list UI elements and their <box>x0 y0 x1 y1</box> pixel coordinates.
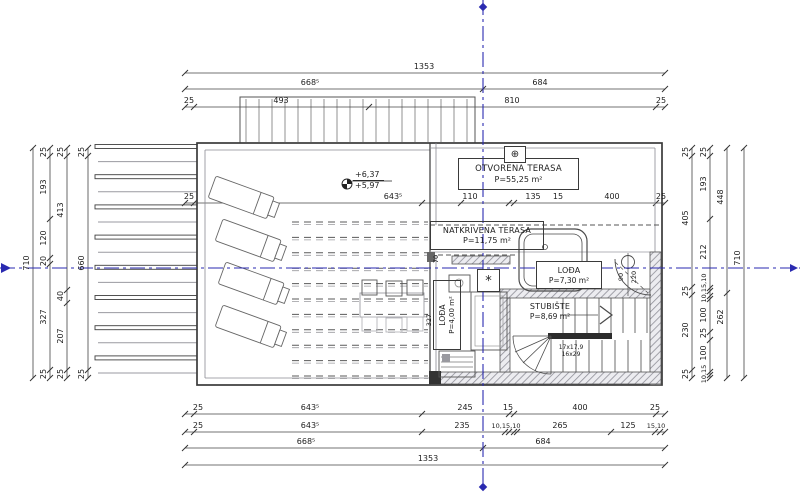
room-label-lodja-left: LOĐA P=4,00 m² <box>433 280 461 350</box>
room-name: NATKRIVENA TERASA <box>431 226 543 235</box>
dimension-label: 125 <box>620 422 635 430</box>
dimension-label: 660 <box>78 255 86 270</box>
dimension-label: 327 <box>426 314 433 326</box>
dimension-label: 20 <box>40 256 48 266</box>
dimension-label: 25 <box>700 147 708 157</box>
dimension-label: 10,15,10 <box>492 423 521 430</box>
room-label-lodja-right: LOĐA P=7,30 m² <box>536 261 602 289</box>
plan-linework <box>0 0 800 494</box>
dimension-label: 25 <box>78 369 86 379</box>
dimension-label: 207 <box>57 328 65 343</box>
dimension-label: 265 <box>552 422 567 430</box>
dimension-label: 15,10 <box>647 423 666 430</box>
asterisk-icon: * <box>485 274 492 289</box>
room-name: STUBIŠTE <box>512 302 588 311</box>
dimension-label: 25 <box>57 147 65 157</box>
room-area: P=7,30 m² <box>537 276 601 285</box>
stair-step-note: 17x17,9 16x29 <box>548 344 594 358</box>
dimension-label: 25 <box>193 404 203 412</box>
dimension-label: 643⁵ <box>301 422 319 430</box>
dimension-label: 135 <box>525 193 540 201</box>
dimension-label: 193 <box>700 176 708 191</box>
dimension-label: 25 <box>682 369 690 379</box>
room-label-natkrivena-terasa: NATKRIVENA TERASA P=11,75 m² <box>430 221 544 250</box>
dimension-label: 25 <box>656 193 666 201</box>
dimension-label: 10,15,10 <box>701 274 708 303</box>
roof-drain-symbol: ⊕ <box>504 146 526 163</box>
dimension-label: 220 <box>631 271 638 283</box>
dimension-label: 212 <box>700 244 708 259</box>
axis-lines <box>0 0 800 494</box>
dimension-label: 193 <box>40 179 48 194</box>
dimension-label: 810 <box>504 97 519 105</box>
dimension-label: 684 <box>532 79 547 87</box>
dimension-label: 710 <box>734 250 742 265</box>
level-upper: +6,37 <box>353 170 384 181</box>
room-area: P=8,69 m² <box>512 312 588 321</box>
dimension-label: 684 <box>535 438 550 446</box>
dimension-label: 100 <box>700 307 708 322</box>
dimension-label: 327 <box>40 309 48 324</box>
room-area: P=4,00 m² <box>448 281 456 349</box>
dimension-label: 235 <box>454 422 469 430</box>
dimension-label: 230 <box>682 322 690 337</box>
dimension-label: 70 <box>433 255 440 263</box>
dimension-label: 493 <box>273 97 288 105</box>
room-area: P=11,75 m² <box>431 236 543 245</box>
room-name: LOĐA <box>438 281 447 349</box>
level-marker: +6,37 +5,97 <box>353 170 384 190</box>
dimension-label: 110 <box>462 193 477 201</box>
dimension-label: 400 <box>604 193 619 201</box>
dimension-label: 25 <box>656 97 666 105</box>
dimension-label: 25 <box>40 369 48 379</box>
level-lower: +5,97 <box>353 181 384 190</box>
dimension-label: 25 <box>78 147 86 157</box>
dimension-label: 25 <box>184 97 194 105</box>
dimension-label: 25 <box>650 404 660 412</box>
table-group <box>360 280 424 332</box>
dimension-label: 25 <box>700 328 708 338</box>
dimension-label: 668⁵ <box>297 438 315 446</box>
dimension-label: 25 <box>184 193 194 201</box>
dimension-label: 1353 <box>418 455 438 463</box>
dimension-label: 1353 <box>414 63 434 71</box>
dimension-label: 262 <box>717 309 725 324</box>
star-symbol-box: * <box>477 269 500 292</box>
dimension-label: 245 <box>457 404 472 412</box>
dimension-label: 25 <box>57 369 65 379</box>
dimension-label: 643⁵ <box>301 404 319 412</box>
dimension-label: 10,15 <box>701 365 708 384</box>
room-label-stubiste: STUBIŠTE P=8,69 m² <box>512 300 588 322</box>
dimension-label: 448 <box>717 189 725 204</box>
room-area: P=55,25 m² <box>459 175 578 184</box>
dimension-label: 120 <box>40 230 48 245</box>
lounge-chairs <box>208 176 291 350</box>
dimension-label: 668⁵ <box>301 79 319 87</box>
circled-plus-icon: ⊕ <box>511 149 519 160</box>
dimension-label: 25 <box>682 286 690 296</box>
dimension-label: 40 <box>57 291 65 301</box>
dimension-label: 405 <box>682 210 690 225</box>
dimension-label: 643⁵ <box>384 193 402 201</box>
room-name: OTVORENA TERASA <box>459 164 578 174</box>
dimension-label: 100 <box>700 345 708 360</box>
floor-plan-page: OTVORENA TERASA P=55,25 m² NATKRIVENA TE… <box>0 0 800 494</box>
dimension-label: 710 <box>23 255 31 270</box>
dimension-label: 25 <box>193 422 203 430</box>
dimension-label: 15 <box>553 193 563 201</box>
dimension-label: 25 <box>40 147 48 157</box>
dimension-label: 15 <box>503 404 513 412</box>
dimension-label: 413 <box>57 202 65 217</box>
dimension-label: 400 <box>572 404 587 412</box>
dimension-label: 25 <box>682 147 690 157</box>
room-name: LOĐA <box>537 266 601 275</box>
dimension-label: 90 <box>618 273 625 281</box>
